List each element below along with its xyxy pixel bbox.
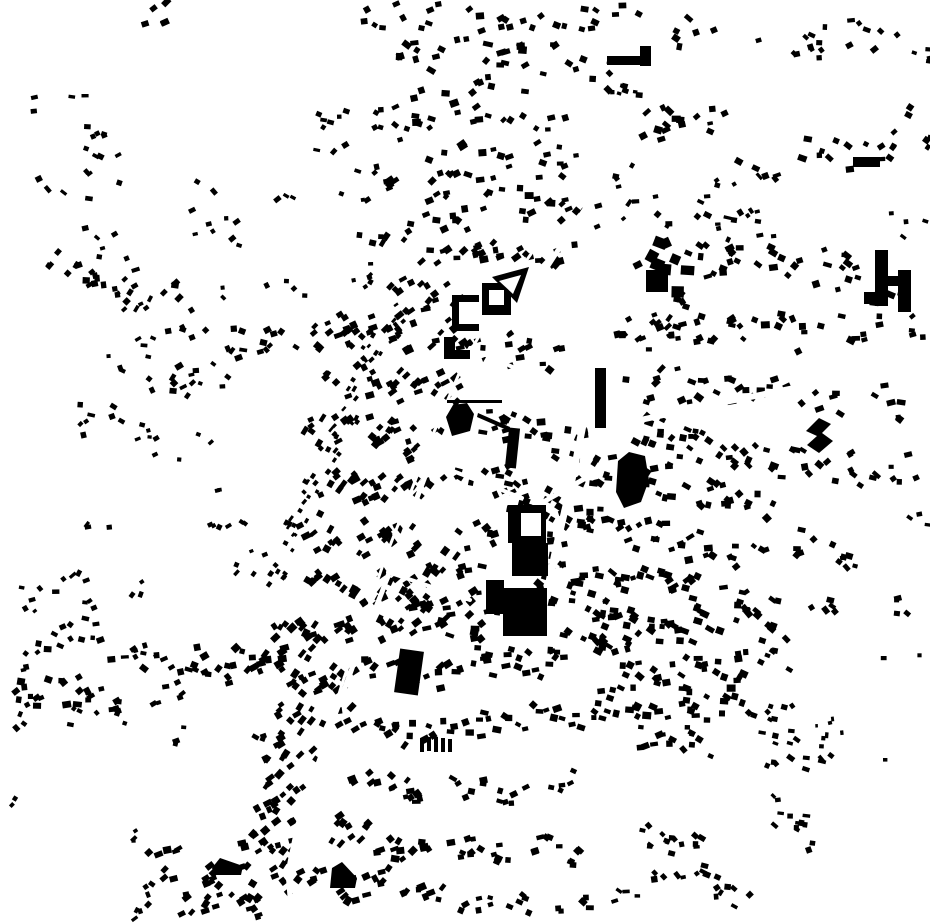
figure-ground-map: [0, 0, 930, 924]
street-network-layer: [288, 198, 930, 922]
figure-ground-map-stage: [0, 0, 930, 924]
building-clusters-layer: [9, 0, 930, 922]
